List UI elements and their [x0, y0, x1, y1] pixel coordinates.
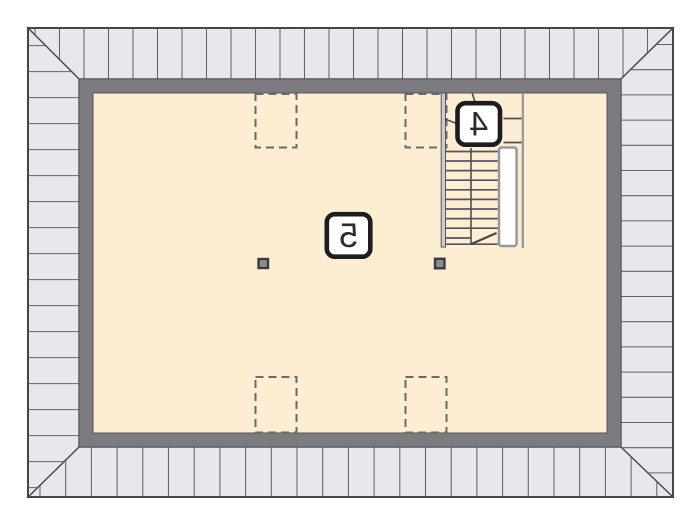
svg-text:5: 5	[339, 217, 358, 255]
svg-text:4: 4	[469, 106, 488, 144]
